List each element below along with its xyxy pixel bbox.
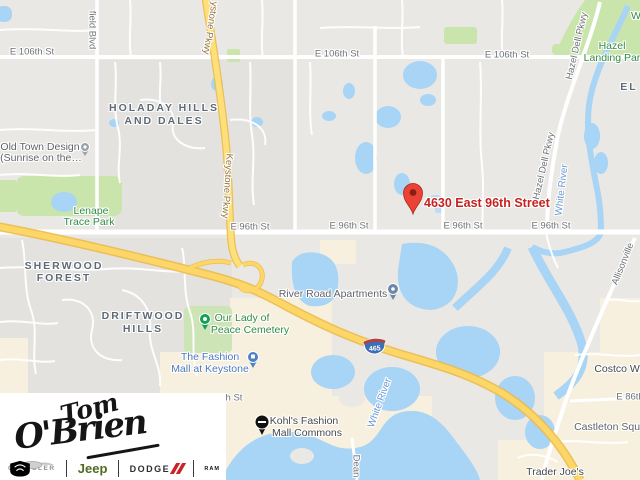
svg-text:465: 465 [369,345,381,353]
street-label-e96-d: E 96th St [531,221,570,232]
dodge-logo: DODGE [130,463,183,474]
ram-logo: RAM [204,466,220,472]
brand-divider [118,460,119,477]
poi-label-kohls-1[interactable]: Kohl's Fashion [270,415,339,427]
ram-label: RAM [204,466,220,472]
poi-label-fashion-1[interactable]: The Fashion [181,351,239,363]
park-label-hazel-landing-2: Landing Par [584,52,640,64]
brand-row: CHRYSLER Jeep DODGE [8,460,220,477]
area-label-sherwood-1: SHERWOOD [25,260,104,272]
poi-label-river-road[interactable]: River Road Apartments [279,288,388,300]
poi-label-kohls-2[interactable]: Mall Commons [272,427,342,439]
area-label-driftwood-1: DRIFTWOOD [102,310,185,322]
ram-badge-icon [8,460,32,477]
poi-label-trader-joes[interactable]: Trader Joe's [526,466,584,478]
street-label-e86: E 86th [616,392,640,403]
park-label-cemetery-2[interactable]: Peace Cemetery [211,324,289,336]
map-canvas[interactable]: 465 [0,0,640,480]
poi-label-fashion-2[interactable]: Mall at Keystone [171,363,249,375]
poi-label-costco[interactable]: Costco Wh [594,363,640,375]
park-label-lenape-2: Trace Park [64,216,115,228]
street-label-e106-b: E 106th St [315,49,359,60]
area-label-holaday-1: HOLADAY HILLS [109,102,219,114]
river-road-pin-icon[interactable] [388,284,399,301]
brand-divider [193,460,194,477]
street-label-e96-a: E 96th St [230,222,269,233]
park-label-cemetery-1[interactable]: Our Lady of [215,312,270,324]
street-label-h-st: h St [226,393,243,404]
street-label-dean: Dean [351,455,362,478]
park-label-hazel-landing-1: Hazel [599,40,626,52]
street-label-field-blvd: field Blvd [87,11,98,50]
area-label-sherwood-2: FOREST [37,272,92,284]
dodge-label: DODGE [130,464,171,474]
destination-marker-icon[interactable] [404,184,423,215]
jeep-logo: Jeep [78,461,108,476]
poi-label-castleton[interactable]: Castleton Squa [574,421,640,433]
marker-address-label[interactable]: 4630 East 96th Street [424,196,550,210]
street-label-e106-a: E 106th St [10,47,54,58]
dealer-logo: Tom O'Brien CHRYSLER Jeep DODGE [0,393,226,480]
street-label-e96-c: E 96th St [443,221,482,232]
street-label-e106-c: E 106th St [485,50,529,61]
street-label-e96-b: E 96th St [329,221,368,232]
area-label-driftwood-2: HILLS [123,323,163,335]
brand-divider [66,460,67,477]
poi-label-old-town-2[interactable]: (Sunrise on the… [0,152,82,164]
area-label-w: W [631,10,640,22]
area-label-holaday-2: AND DALES [124,115,203,127]
area-label-el: EL [620,81,637,93]
